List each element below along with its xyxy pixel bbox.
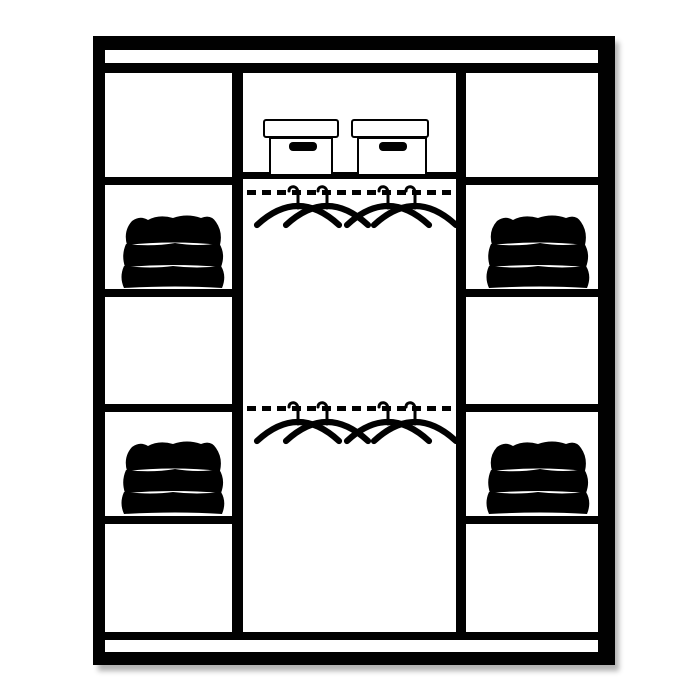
shelf-left-1 — [105, 177, 232, 185]
storage-box-lid — [263, 119, 339, 138]
hangers-group-upper — [242, 178, 456, 240]
hangers-group-lower — [242, 394, 456, 456]
shelf-right-1 — [466, 177, 598, 185]
storage-box-handle-slot — [289, 142, 317, 151]
divider-right — [456, 63, 466, 638]
shelf-right-3 — [466, 404, 598, 412]
frame-bottom-bar — [93, 652, 614, 665]
frame-left-bar — [93, 36, 105, 665]
shelf-left-4 — [105, 516, 232, 524]
shelf-right-4 — [466, 516, 598, 524]
storage-box-lid — [351, 119, 429, 138]
base-panel-line — [105, 632, 598, 640]
storage-box-handle-slot — [379, 142, 407, 151]
top-panel-line — [105, 63, 598, 73]
wardrobe-diagram — [0, 0, 700, 700]
folded-clothes-icon — [117, 211, 229, 291]
shelf-left-3 — [105, 404, 232, 412]
folded-clothes-icon — [482, 437, 594, 517]
frame-top-bar — [93, 36, 614, 50]
folded-clothes-icon — [117, 437, 229, 517]
frame-right-bar — [598, 36, 615, 665]
divider-left — [232, 63, 243, 638]
folded-clothes-icon — [482, 211, 594, 291]
